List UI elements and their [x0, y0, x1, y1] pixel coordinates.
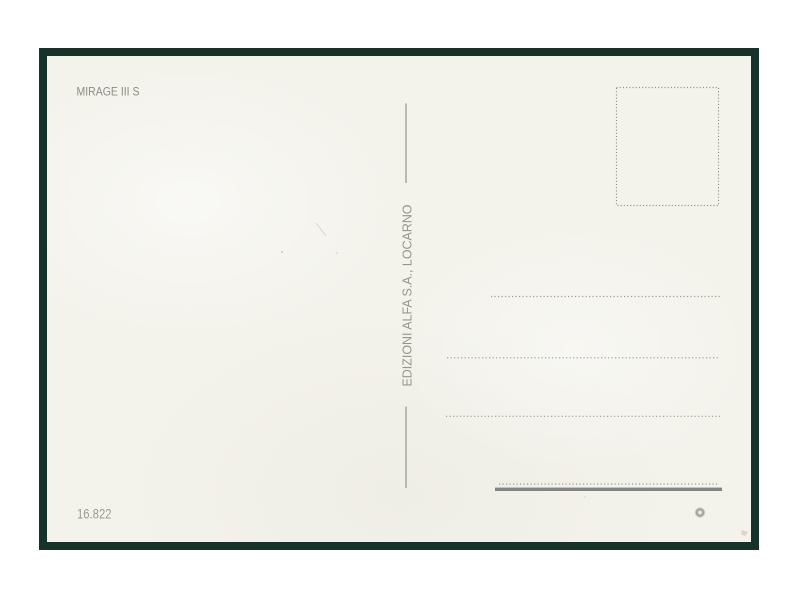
svg-text:16.822: 16.822	[77, 506, 112, 521]
svg-text:EDIZIONI ALFA S.A., LOCARNO: EDIZIONI ALFA S.A., LOCARNO	[400, 205, 415, 387]
svg-text:MIRAGE III S: MIRAGE III S	[77, 87, 140, 99]
